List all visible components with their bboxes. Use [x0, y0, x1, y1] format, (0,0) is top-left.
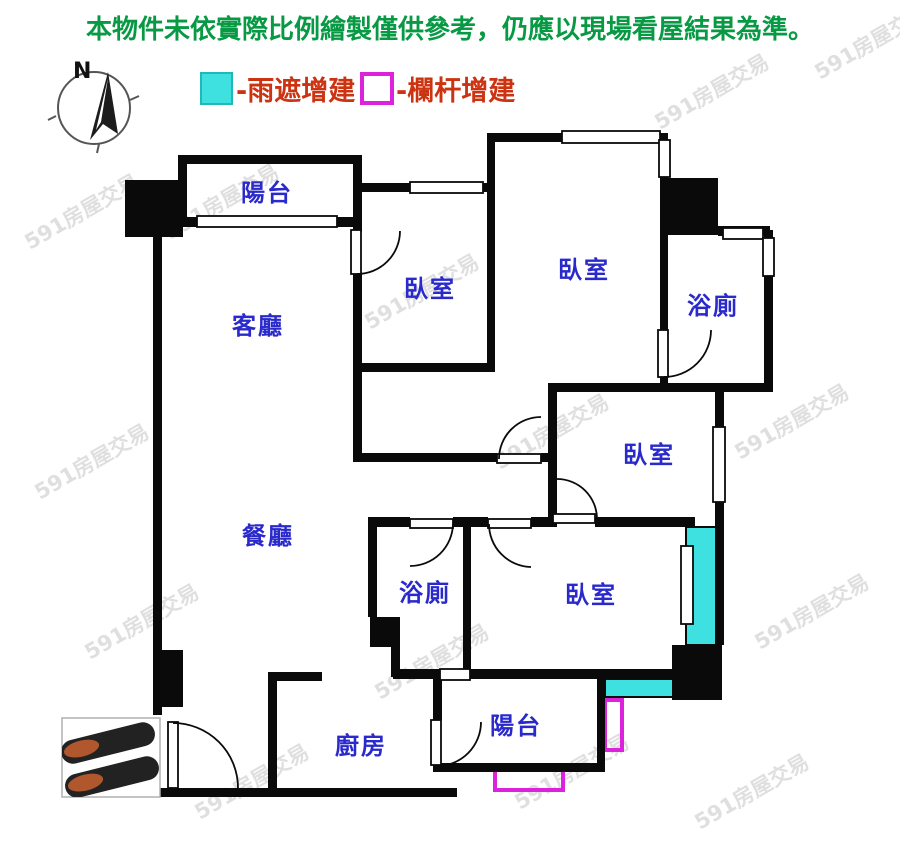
door-arc	[489, 524, 531, 567]
compass-needle-icon	[90, 72, 118, 140]
watermark-text: 591房屋交易	[31, 420, 154, 505]
wall	[178, 155, 360, 164]
door-leaf-bath1	[658, 330, 668, 377]
door-leaf-bedroom4	[488, 519, 531, 528]
rain-cover-swatch	[201, 73, 232, 104]
room-label-bedroom1: 臥室	[404, 275, 456, 303]
wall	[548, 383, 557, 527]
wall	[487, 137, 495, 370]
watermark-text: 591房屋交易	[811, 0, 900, 84]
shoes-image	[59, 718, 162, 800]
wall	[153, 788, 457, 797]
rain-cover-label: -雨遮增建	[236, 75, 355, 107]
watermark-text: 591房屋交易	[731, 380, 854, 465]
window	[763, 238, 774, 276]
door-arc	[664, 330, 711, 377]
door-arc	[357, 231, 400, 274]
watermark-text: 591房屋交易	[751, 570, 874, 655]
door-leaf-bedroom1	[351, 230, 361, 274]
walls-layer	[125, 133, 773, 797]
wall	[353, 453, 497, 462]
room-label-kitchen: 廚房	[335, 732, 387, 760]
compass: N	[48, 59, 139, 153]
floorplan-canvas: 591房屋交易 591房屋交易 591房屋交易 591房屋交易 591房屋交易 …	[0, 0, 900, 847]
pillar	[370, 617, 400, 647]
wall	[353, 155, 362, 232]
watermark-text: 591房屋交易	[81, 580, 204, 665]
wall	[595, 517, 695, 527]
room-label-bedroom3: 臥室	[623, 441, 675, 469]
wall	[368, 520, 377, 617]
wall	[153, 218, 162, 715]
door-leaf-entrance	[168, 722, 178, 788]
wall	[268, 672, 277, 797]
door-arc	[557, 479, 597, 519]
room-label-balcony-top: 陽台	[241, 179, 293, 207]
pillar	[667, 178, 718, 235]
watermark-text: 591房屋交易	[651, 50, 774, 135]
room-label-bedroom2: 臥室	[558, 256, 610, 284]
window	[713, 427, 725, 502]
railing-swatch	[362, 74, 392, 103]
wall	[353, 273, 362, 372]
window	[681, 546, 693, 624]
wall	[353, 363, 495, 372]
wall	[433, 763, 605, 772]
door-leaf-bath2	[410, 519, 453, 528]
wall	[597, 679, 605, 772]
door-arc	[437, 722, 481, 766]
wall	[463, 520, 471, 677]
door-arc	[410, 524, 453, 566]
compass-tick-south	[97, 144, 99, 153]
wall	[353, 368, 362, 460]
disclaimer-text: 本物件未依實際比例繪製僅供參考，仍應以現場看屋結果為準。	[86, 14, 814, 45]
room-label-dining: 餐廳	[242, 522, 294, 550]
watermark-text: 591房屋交易	[21, 170, 144, 255]
wall	[715, 383, 724, 645]
compass-north-label: N	[73, 59, 91, 84]
room-label-balcony-bottom: 陽台	[490, 712, 542, 740]
legend: -雨遮增建 -欄杆增建	[201, 73, 515, 107]
floorplan-page: 591房屋交易 591房屋交易 591房屋交易 591房屋交易 591房屋交易 …	[0, 0, 900, 847]
watermark-text: 591房屋交易	[691, 750, 814, 835]
window	[440, 669, 470, 680]
window	[659, 140, 670, 177]
window	[562, 131, 660, 143]
window	[410, 182, 483, 193]
wall	[548, 383, 773, 392]
room-label-bath1: 浴廁	[687, 292, 739, 320]
room-label-bath2: 浴廁	[399, 579, 451, 607]
window	[723, 228, 763, 239]
door-leaf-bedroom2	[497, 454, 541, 463]
door-arc	[173, 723, 238, 788]
railing-label: -欄杆增建	[396, 75, 515, 107]
compass-tick-east	[130, 96, 139, 100]
room-label-bedroom4: 臥室	[565, 581, 617, 609]
watermark-layer: 591房屋交易 591房屋交易 591房屋交易 591房屋交易 591房屋交易 …	[21, 0, 900, 834]
compass-tick-west	[48, 116, 56, 120]
door-leaf-balcony2	[431, 720, 441, 765]
wall	[178, 155, 187, 222]
door-leaf-bedroom3	[553, 514, 595, 523]
pillar	[672, 645, 722, 700]
rain-cover-strip-bottom	[605, 679, 673, 697]
window	[197, 216, 337, 227]
watermark-text: 591房屋交易	[191, 740, 314, 825]
room-label-living: 客廳	[232, 312, 284, 340]
